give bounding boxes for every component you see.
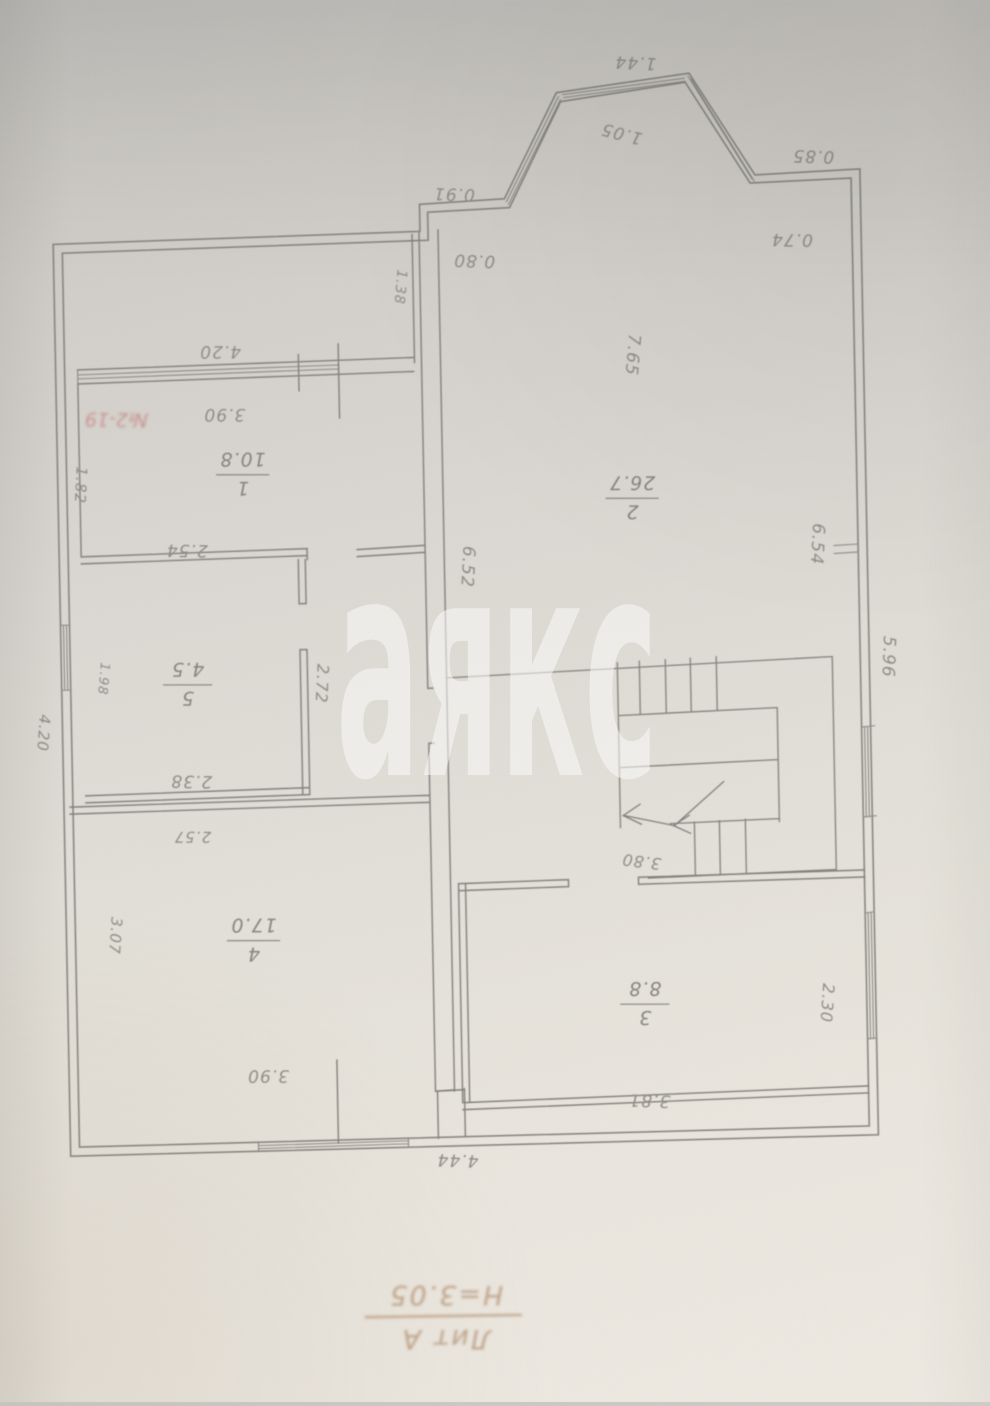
scanned-floorplan-photo: 1.44 1.05 0.85 0.74 0.91 0.80 1.38 4.20 … xyxy=(0,0,990,1402)
photo-grain-overlay xyxy=(0,0,990,1402)
floorplan-drawing: 1.44 1.05 0.85 0.74 0.91 0.80 1.38 4.20 … xyxy=(0,0,990,1402)
